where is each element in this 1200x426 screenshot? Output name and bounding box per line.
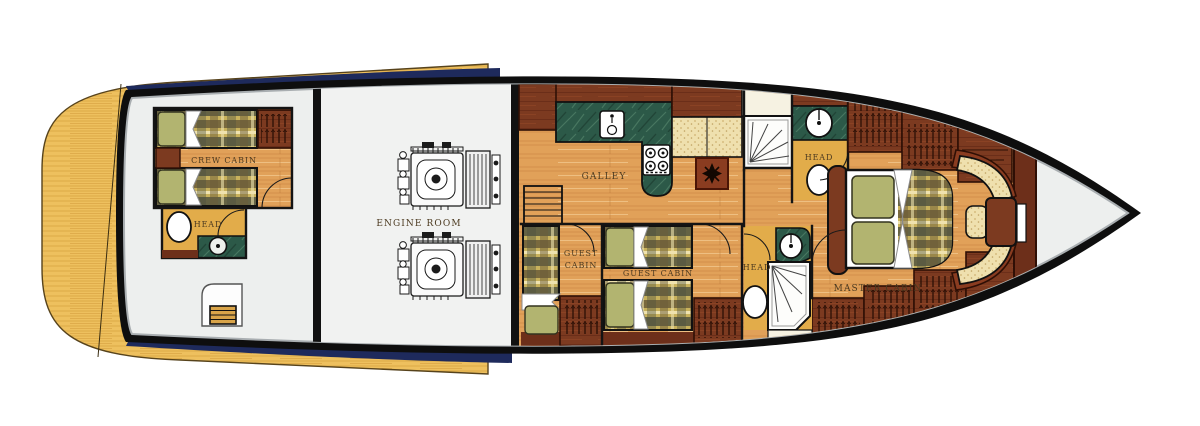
pillow xyxy=(606,228,634,266)
label-crew-cabin: CREW CABIN xyxy=(191,156,257,165)
pillow xyxy=(852,176,894,218)
nightstand xyxy=(156,148,180,168)
lazarette-hatch xyxy=(202,284,242,326)
label-engine-room: ENGINE ROOM xyxy=(376,219,461,229)
label-mid-head: HEAD xyxy=(743,263,772,272)
pillow xyxy=(525,306,558,334)
toilet-icon xyxy=(743,286,767,318)
fwd-shower xyxy=(742,84,792,168)
pillow xyxy=(158,112,185,146)
master-bed xyxy=(828,166,952,274)
label-aft-head: HEAD xyxy=(194,220,223,229)
guest-bed xyxy=(523,226,559,300)
pillow xyxy=(852,222,894,264)
pillow xyxy=(606,283,634,327)
compass-table xyxy=(696,158,728,189)
galley-cabinet-aft xyxy=(519,84,558,130)
shower xyxy=(768,262,810,330)
companionway-stairs xyxy=(524,186,562,224)
deck-plan-page: CREW CABIN HEAD ENGINE ROOM GALLEY GUEST… xyxy=(0,0,1200,426)
engine-room-floor xyxy=(321,78,513,350)
pillow xyxy=(158,170,185,204)
toilet-icon xyxy=(167,212,191,242)
label-fwd-head: HEAD xyxy=(805,153,834,162)
bow-door xyxy=(1017,204,1026,242)
mid-head xyxy=(743,226,812,346)
bow-stool xyxy=(966,206,988,238)
label-galley: GALLEY xyxy=(582,172,627,182)
label-guest-cabin-port-2: CABIN xyxy=(565,261,597,270)
stove-icon xyxy=(643,145,670,175)
cabinet-strip xyxy=(162,250,198,258)
label-guest-cabin-port-1: GUEST xyxy=(564,249,598,258)
bulkhead-lazarette xyxy=(313,78,321,350)
aft-head xyxy=(162,208,246,258)
bow-table xyxy=(986,198,1016,246)
bulkhead-engine-room xyxy=(511,78,519,350)
deck-plan: CREW CABIN HEAD ENGINE ROOM GALLEY GUEST… xyxy=(0,0,1200,426)
label-guest-cabin: GUEST CABIN xyxy=(623,269,693,278)
label-master-cabin: MASTER CABIN xyxy=(834,284,923,294)
